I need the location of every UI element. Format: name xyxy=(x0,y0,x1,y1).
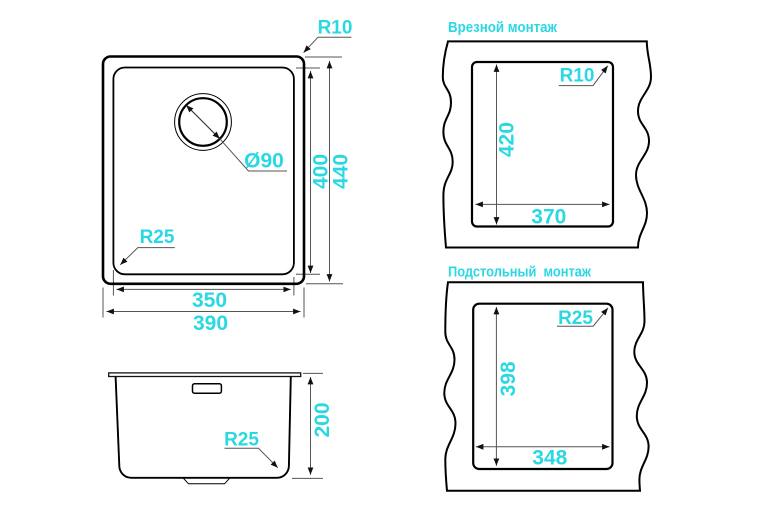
svg-text:Ø90: Ø90 xyxy=(244,150,284,173)
svg-text:Врезной монтаж: Врезной монтаж xyxy=(448,20,558,36)
svg-text:R25: R25 xyxy=(140,227,175,248)
svg-text:R10: R10 xyxy=(318,18,353,39)
svg-text:348: 348 xyxy=(532,447,567,470)
svg-text:R10: R10 xyxy=(560,66,595,87)
svg-text:440: 440 xyxy=(330,154,353,189)
svg-text:200: 200 xyxy=(311,402,334,437)
svg-text:Подстольный монтаж: Подстольный монтаж xyxy=(448,265,592,281)
svg-text:390: 390 xyxy=(193,312,228,335)
svg-text:370: 370 xyxy=(531,206,566,229)
svg-text:398: 398 xyxy=(497,361,520,396)
svg-text:420: 420 xyxy=(495,122,518,157)
svg-text:350: 350 xyxy=(192,289,227,312)
svg-text:R25: R25 xyxy=(224,430,259,451)
